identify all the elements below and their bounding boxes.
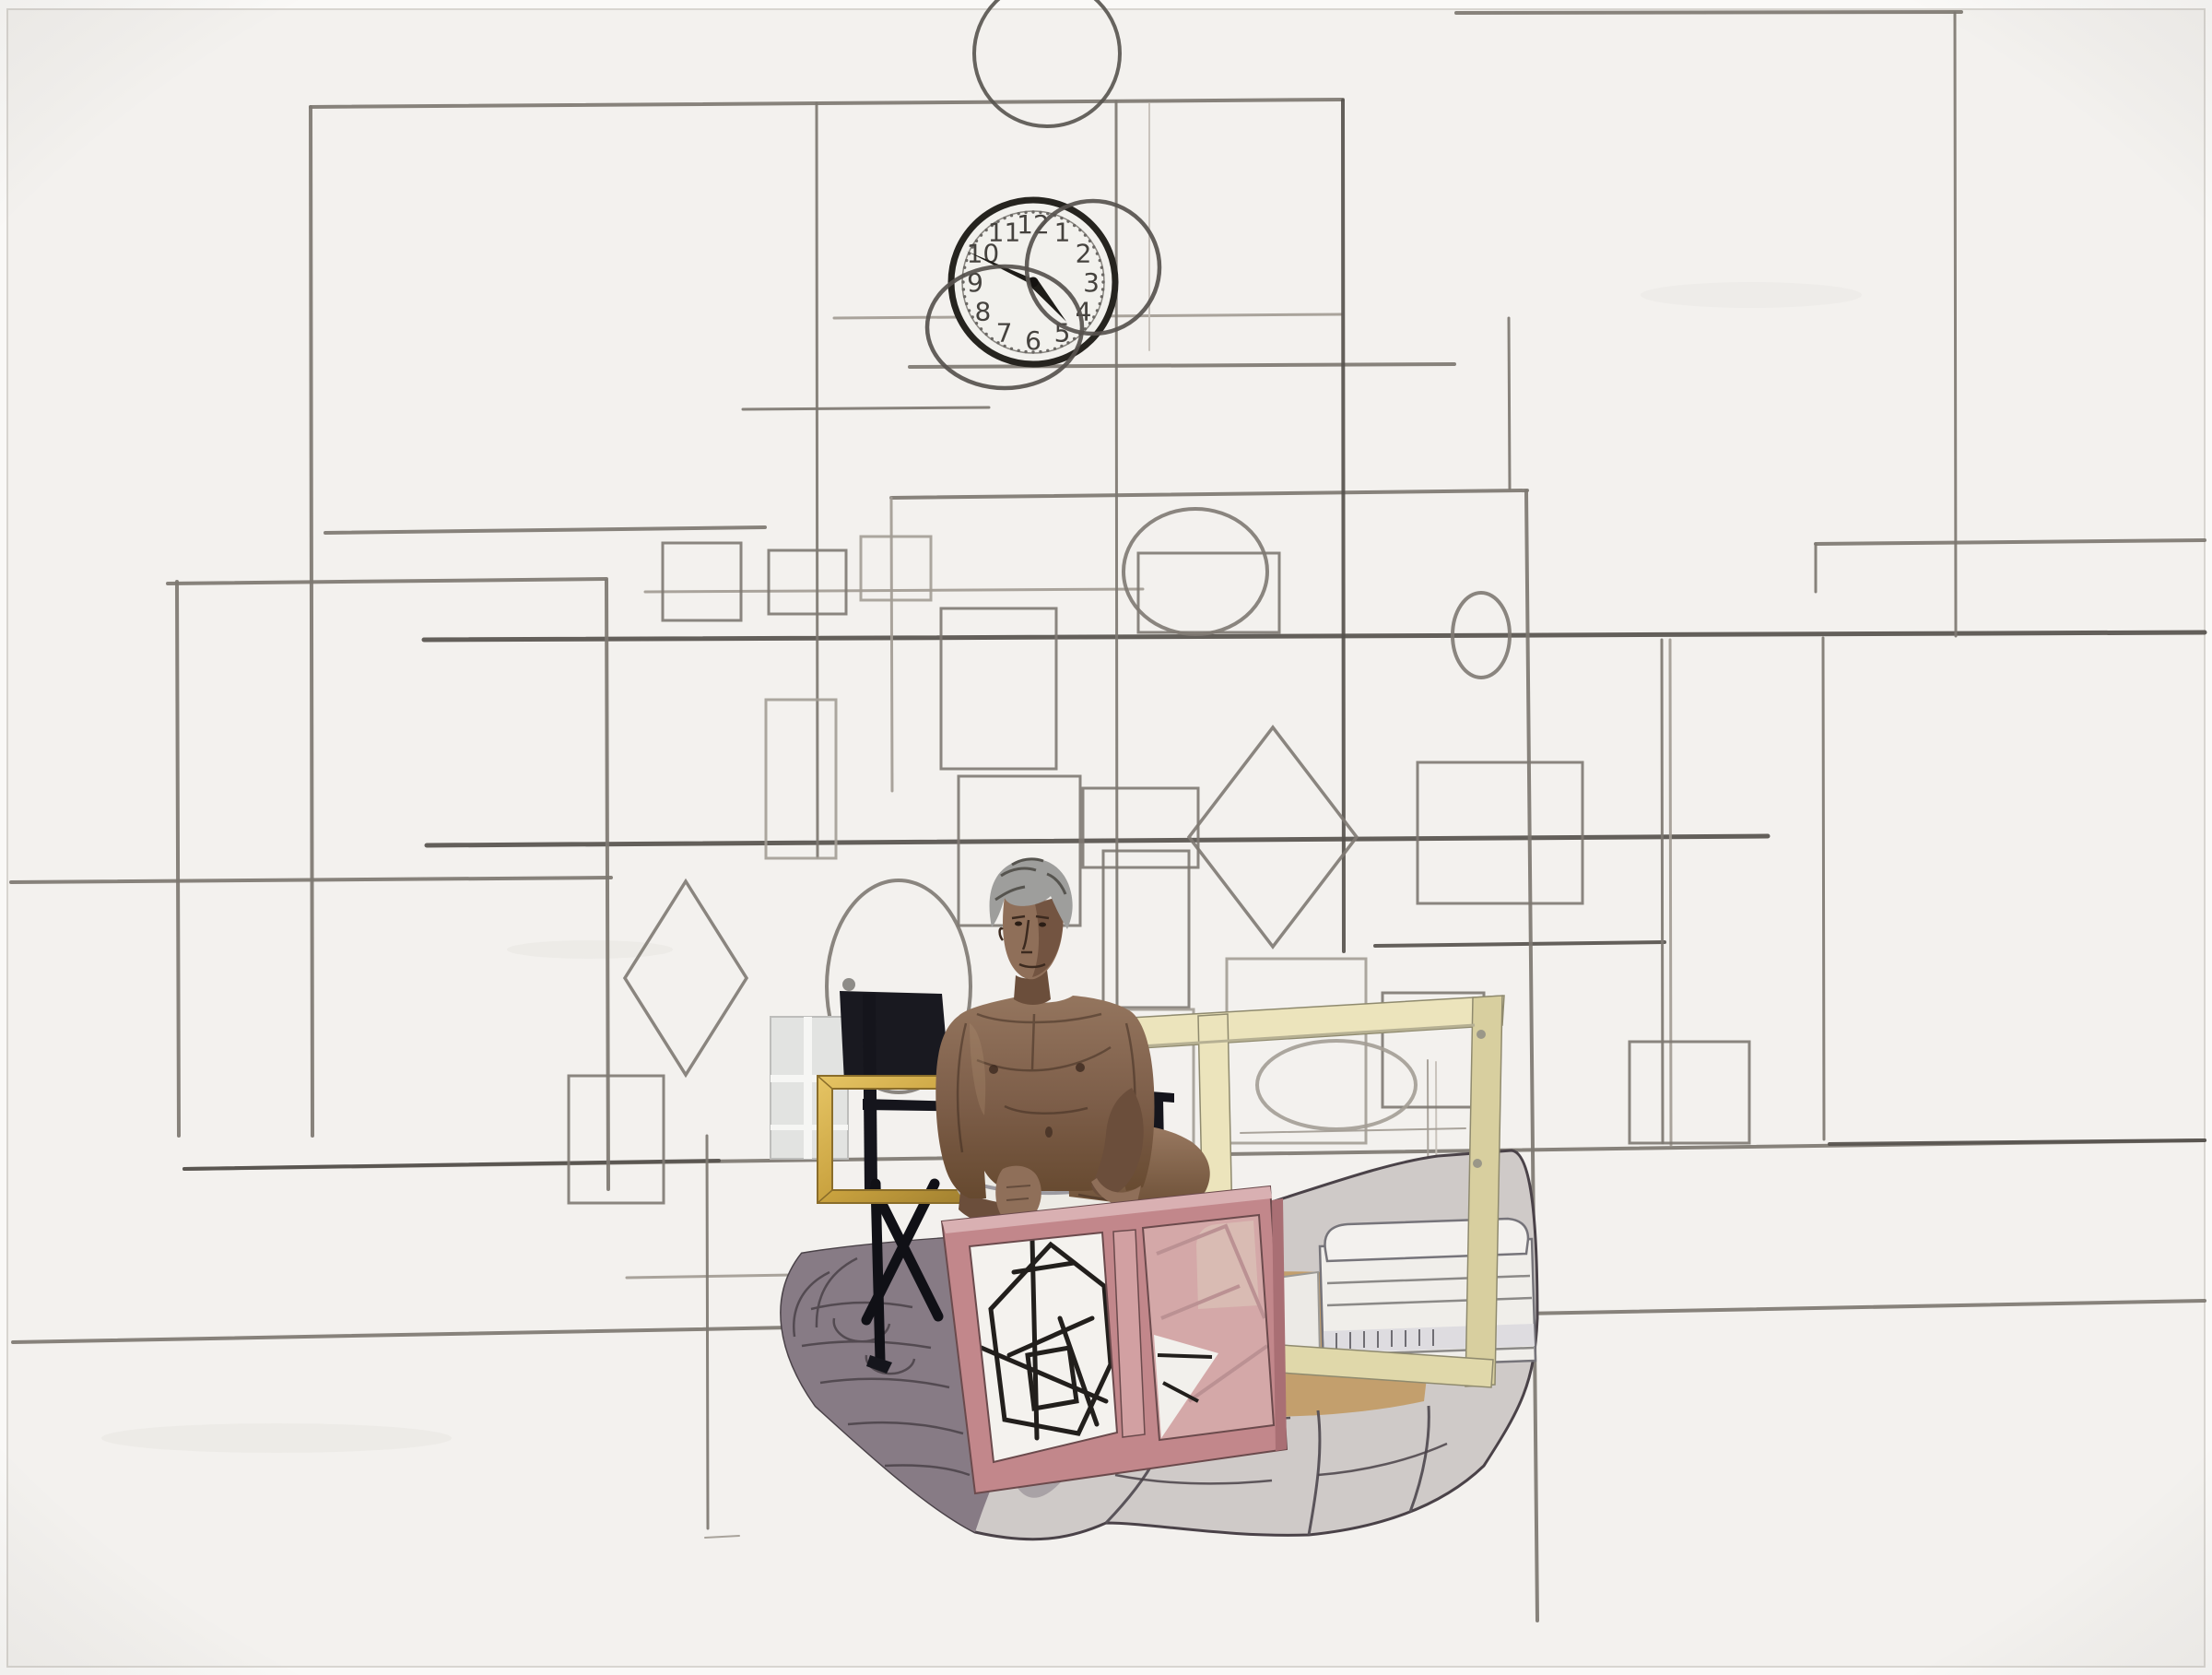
vignette: [0, 0, 2212, 1675]
artwork-photo: 123456789101112: [0, 0, 2212, 1675]
artwork-canvas: 123456789101112: [0, 0, 2212, 1675]
